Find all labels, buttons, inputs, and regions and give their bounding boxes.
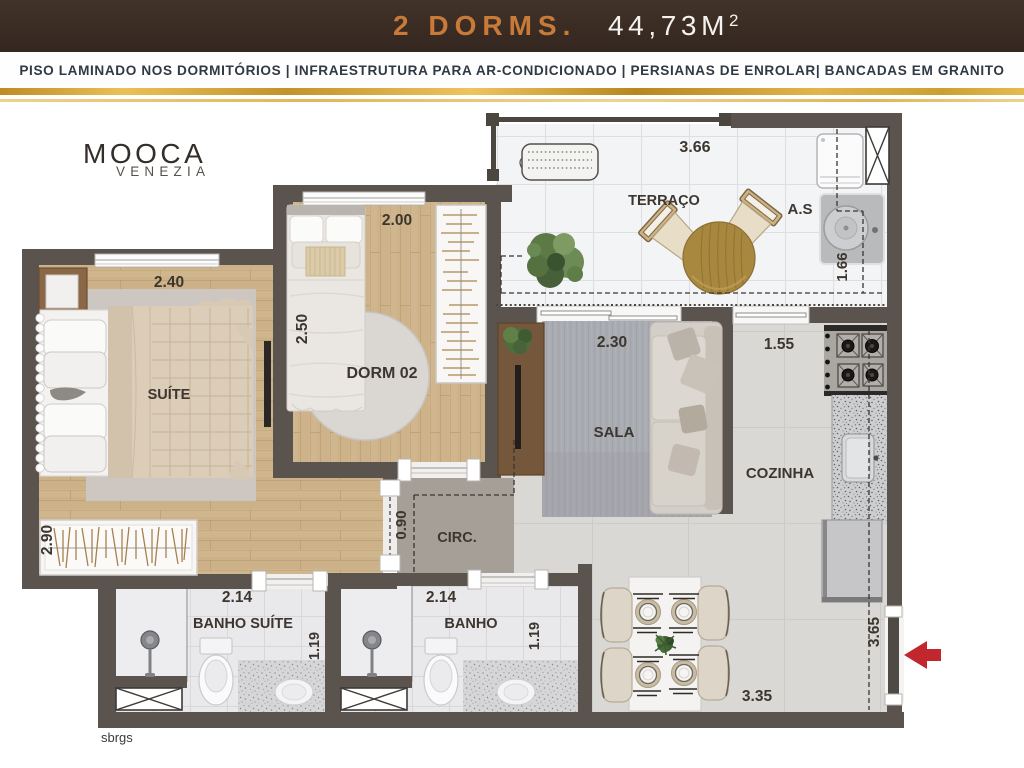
- svg-text:TERRAÇO: TERRAÇO: [628, 193, 700, 209]
- svg-text:DORM 02: DORM 02: [346, 365, 417, 382]
- svg-text:0.90: 0.90: [393, 510, 410, 539]
- svg-text:2.50: 2.50: [294, 314, 311, 344]
- svg-text:2.00: 2.00: [382, 212, 412, 229]
- svg-text:CIRC.: CIRC.: [437, 530, 476, 546]
- svg-text:SALA: SALA: [594, 424, 635, 441]
- svg-text:2.14: 2.14: [426, 589, 457, 606]
- svg-text:3.35: 3.35: [742, 688, 773, 705]
- svg-text:BANHO: BANHO: [444, 616, 497, 632]
- svg-text:COZINHA: COZINHA: [746, 465, 814, 482]
- svg-text:3.65: 3.65: [866, 617, 883, 648]
- svg-text:2.90: 2.90: [39, 525, 56, 555]
- svg-text:2.14: 2.14: [222, 589, 253, 606]
- svg-text:1.19: 1.19: [527, 622, 543, 650]
- svg-text:BANHO SUÍTE: BANHO SUÍTE: [193, 615, 293, 632]
- svg-text:1.55: 1.55: [764, 336, 795, 353]
- svg-text:A.S: A.S: [787, 201, 812, 218]
- svg-text:SUÍTE: SUÍTE: [148, 386, 191, 403]
- svg-text:sbrgs: sbrgs: [101, 730, 133, 745]
- svg-text:1.19: 1.19: [307, 632, 323, 660]
- svg-text:2.40: 2.40: [154, 274, 184, 291]
- svg-text:3.66: 3.66: [679, 139, 710, 156]
- svg-text:1.66: 1.66: [834, 252, 851, 281]
- svg-text:2.30: 2.30: [597, 334, 627, 351]
